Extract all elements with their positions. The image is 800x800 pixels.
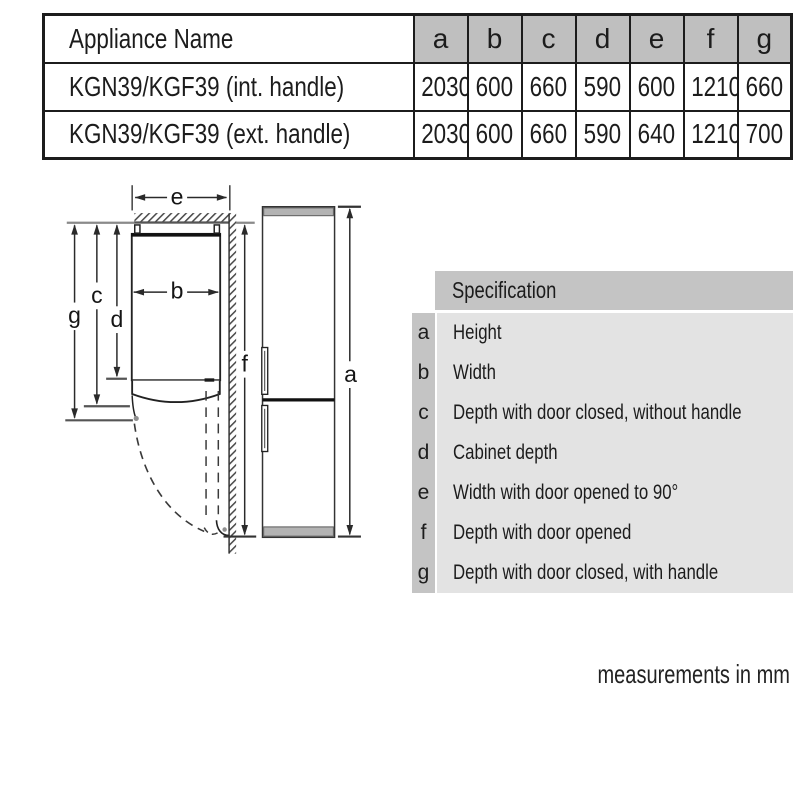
table-cell: 1210: [684, 63, 738, 111]
legend-key: a: [412, 313, 435, 353]
table-cell: 590: [576, 63, 630, 111]
dimension-b-label: b: [171, 278, 184, 304]
col-header-g: g: [738, 15, 792, 63]
appliance-name-cell: KGN39/KGF39 (int. handle): [44, 63, 414, 111]
appliance-name-header: Appliance Name: [44, 15, 414, 63]
legend-label: Depth with door closed, with handle: [437, 553, 793, 593]
table-row: KGN39/KGF39 (int. handle) 2030 600 660 5…: [44, 63, 792, 111]
legend-label: Depth with door opened: [437, 513, 793, 553]
legend-row-d: d Cabinet depth: [412, 433, 793, 473]
legend-row-g: g Depth with door closed, with handle: [412, 553, 793, 593]
open-door-pivot-dot: [222, 527, 226, 531]
legend-key: b: [412, 353, 435, 393]
hinge-spacer-left: [135, 225, 140, 233]
legend-label: Height: [437, 313, 793, 353]
table-cell: 1210: [684, 111, 738, 159]
dimension-a-label: a: [344, 361, 357, 387]
dimension-f-label: f: [241, 350, 248, 376]
col-header-b: b: [468, 15, 522, 63]
legend-row-c: c Depth with door closed, without handle: [412, 393, 793, 433]
upper-door-handle: [262, 348, 268, 395]
legend-row-b: b Width: [412, 353, 793, 393]
dimension-c-label: c: [91, 282, 103, 308]
legend-label: Depth with door closed, without handle: [437, 393, 793, 433]
open-door-bottom: [204, 528, 217, 535]
top-cap: [264, 208, 334, 216]
dimension-e-label: e: [171, 183, 184, 209]
measurements-note: measurements in mm: [500, 659, 790, 690]
col-header-f: f: [684, 15, 738, 63]
lower-door-handle: [262, 405, 268, 451]
col-header-e: e: [630, 15, 684, 63]
table-cell: 640: [630, 111, 684, 159]
table-cell: 2030: [414, 111, 468, 159]
table-cell: 600: [468, 111, 522, 159]
door-swing: [134, 391, 228, 535]
table-cell: 660: [738, 63, 792, 111]
table-row: KGN39/KGF39 (ext. handle) 2030 600 660 5…: [44, 111, 792, 159]
wall-hatch-right: [229, 213, 236, 553]
spec-sheet-page: Appliance Name a b c d e f g KGN39/KGF39…: [0, 0, 800, 800]
dimension-d-label: d: [111, 306, 124, 332]
dimension-table: Appliance Name a b c d e f g KGN39/KGF39…: [42, 13, 793, 160]
door-pivot-dot: [134, 416, 139, 421]
legend-label: Cabinet depth: [437, 433, 793, 473]
door-corner-curl: [132, 395, 135, 417]
col-header-c: c: [522, 15, 576, 63]
door-swing-arc: [134, 424, 204, 532]
legend-key: e: [412, 473, 435, 513]
table-cell: 600: [468, 63, 522, 111]
door-hinge-mark: [205, 378, 215, 381]
front-view-fridge: [262, 207, 335, 538]
hinge-spacer-right: [214, 225, 219, 233]
table-cell: 660: [522, 111, 576, 159]
top-view-fridge: [131, 225, 221, 421]
legend-label: Width with door opened to 90°: [437, 473, 793, 513]
table-cell: 600: [630, 63, 684, 111]
installation-diagram: e b g c d f a: [0, 180, 450, 700]
base-plinth: [264, 527, 334, 536]
legend-key: f: [412, 513, 435, 553]
legend-header: Specification: [435, 271, 793, 310]
legend-row-f: f Depth with door opened: [412, 513, 793, 553]
table-header-row: Appliance Name a b c d e f g: [44, 15, 792, 63]
legend-key: d: [412, 433, 435, 473]
legend-key: g: [412, 553, 435, 593]
legend-row-a: a Height: [412, 313, 793, 353]
table-cell: 660: [522, 63, 576, 111]
appliance-name-cell: KGN39/KGF39 (ext. handle): [44, 111, 414, 159]
table-cell: 2030: [414, 63, 468, 111]
table-cell: 700: [738, 111, 792, 159]
legend-label: Width: [437, 353, 793, 393]
col-header-a: a: [414, 15, 468, 63]
dimension-g-label: g: [68, 302, 81, 328]
legend-key: c: [412, 393, 435, 433]
col-header-d: d: [576, 15, 630, 63]
wall-hatch-top: [134, 213, 231, 223]
open-door-curl: [216, 520, 228, 535]
table-cell: 590: [576, 111, 630, 159]
specification-legend: Specification a Height b Width c Depth w…: [412, 271, 793, 593]
legend-row-e: e Width with door opened to 90°: [412, 473, 793, 513]
